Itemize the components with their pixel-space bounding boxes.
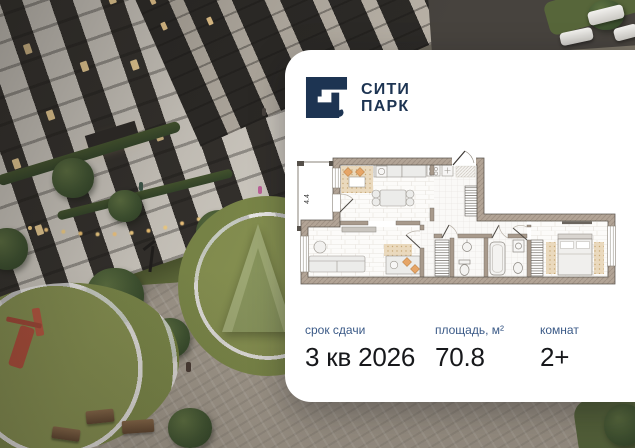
screenshot-root: СИТИ ПАРК xyxy=(0,0,635,448)
wardrobe xyxy=(435,240,449,276)
person xyxy=(186,362,191,372)
tree xyxy=(52,158,94,198)
tree xyxy=(108,190,142,222)
wardrobe xyxy=(531,240,543,276)
stat-rooms: комнат 2+ xyxy=(540,323,579,373)
stat-delivery: срок сдачи 3 кв 2026 xyxy=(305,323,435,373)
logo-line-2: ПАРК xyxy=(361,98,410,115)
lit-windows xyxy=(149,0,157,5)
stat-delivery-value: 3 кв 2026 xyxy=(305,342,435,373)
citypark-logo-icon xyxy=(305,76,348,119)
stat-rooms-value: 2+ xyxy=(540,342,579,373)
stat-delivery-label: срок сдачи xyxy=(305,323,435,337)
listing-card[interactable]: СИТИ ПАРК xyxy=(285,50,635,402)
logo-line-1: СИТИ xyxy=(361,81,410,98)
balcony-area-label: 4.4 xyxy=(304,194,311,204)
stat-area-value: 70.8 xyxy=(435,342,540,373)
bench xyxy=(122,419,155,434)
tree xyxy=(604,404,635,446)
citypark-logo-text: СИТИ ПАРК xyxy=(361,81,410,115)
listing-stats: срок сдачи 3 кв 2026 площадь, м² 70.8 ко… xyxy=(305,323,579,373)
person xyxy=(139,182,143,191)
stat-area-label: площадь, м² xyxy=(435,323,540,337)
stat-rooms-label: комнат xyxy=(540,323,579,337)
entry-mat xyxy=(456,166,475,177)
tree xyxy=(168,408,212,448)
climbing-cone-frame xyxy=(232,248,284,332)
citypark-logo: СИТИ ПАРК xyxy=(305,76,410,119)
stat-area: площадь, м² 70.8 xyxy=(435,323,540,373)
floor-plan: 4.4 xyxy=(296,150,620,290)
person-scooter xyxy=(258,186,262,194)
person xyxy=(262,108,266,116)
entry-door xyxy=(452,151,476,166)
